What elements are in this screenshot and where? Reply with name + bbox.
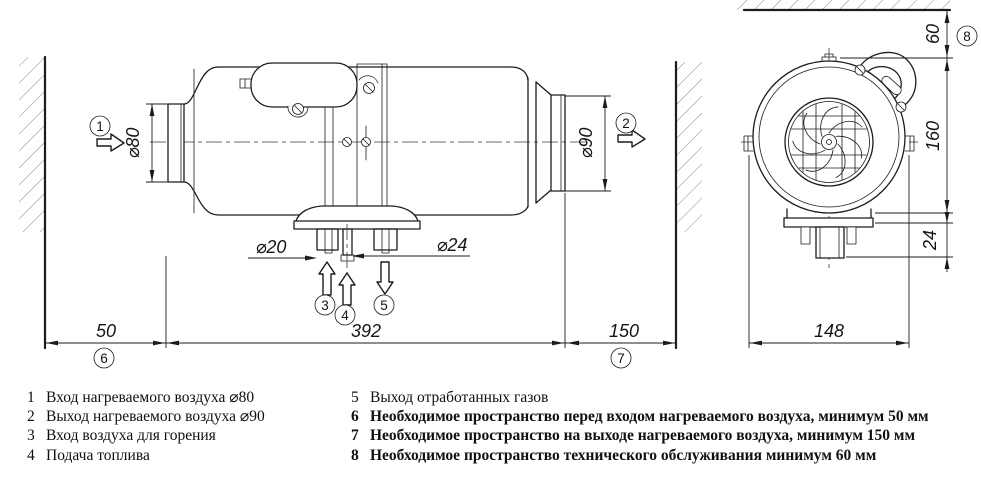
svg-text:5: 5 [380, 298, 388, 313]
outlet-pipe [551, 95, 565, 191]
fan-hub [822, 135, 837, 150]
legend-item-8: 8 Необходимое пространство технического … [351, 446, 976, 465]
dim-d80-label: ⌀80 [123, 128, 143, 159]
fuel-pipe [343, 229, 352, 255]
legend-item-3: 3 Вход воздуха для горения [27, 426, 337, 445]
fuel-arrow-icon [339, 273, 355, 305]
dim-d80: ⌀80 [123, 104, 168, 182]
ceiling-hatching [737, 0, 950, 10]
exhaust-arrow-icon [377, 262, 393, 294]
legend-item-6: 6 Необходимое пространство перед входом … [351, 407, 976, 426]
dim-d20-label: ⌀20 [256, 237, 287, 257]
mounting-flange [294, 206, 420, 276]
svg-text:7: 7 [617, 351, 625, 366]
dim-d90: ⌀90 [565, 96, 611, 191]
right-wall-hatching [676, 62, 702, 348]
svg-text:4: 4 [341, 308, 349, 323]
dim-150-label: 150 [609, 321, 639, 341]
dim-392-label: 392 [351, 321, 381, 341]
airflow-in-arrow-icon [97, 134, 124, 151]
heater-side-view: ⌀80 ⌀90 ⌀20 ⌀24 1 [45, 63, 676, 368]
callout-7: 7 [611, 348, 631, 368]
legend-item-7: 7 Необходимое пространство на выходе наг… [351, 426, 976, 445]
svg-text:1: 1 [96, 119, 104, 134]
exhaust-pipe [374, 229, 397, 250]
left-wall-hatching [19, 57, 45, 348]
legend-left-column: 1 Вход нагреваемого воздуха ⌀80 2 Выход … [27, 388, 337, 465]
heater-installation-drawing: ⌀80 ⌀90 ⌀20 ⌀24 1 [0, 0, 981, 478]
svg-text:3: 3 [321, 298, 329, 313]
dim-d24: ⌀24 [352, 235, 470, 259]
dim-60-label: 60 [923, 24, 943, 44]
combustion-air-pipe [317, 229, 338, 250]
legend-item-4: 4 Подача топлива [27, 446, 337, 465]
inlet-pipe [168, 104, 184, 182]
dim-148-label: 148 [814, 321, 844, 341]
combustion-air-arrow-icon [319, 262, 335, 295]
legend-item-2: 2 Выход нагреваемого воздуха ⌀90 [27, 407, 337, 426]
dim-160-label: 160 [923, 121, 943, 151]
legend-item-1: 1 Вход нагреваемого воздуха ⌀80 [27, 388, 337, 407]
legend-item-5: 5 Выход отработанных газов [351, 388, 976, 407]
callout-1: 1 [90, 116, 110, 136]
legend-right-column: 5 Выход отработанных газов 6 Необходимое… [351, 388, 976, 465]
svg-text:2: 2 [622, 116, 630, 131]
callout-6: 6 [94, 348, 114, 368]
svg-text:6: 6 [100, 351, 108, 366]
heater-front-view: 60 160 24 8 148 [741, 10, 977, 348]
dim-d20: ⌀20 [248, 237, 317, 261]
callout-2: 2 [616, 113, 636, 133]
callout-8: 8 [957, 26, 977, 46]
callout-5: 5 [374, 295, 394, 315]
front-flange [784, 209, 873, 258]
svg-text:8: 8 [963, 29, 971, 44]
dim-d24-label: ⌀24 [437, 235, 468, 255]
callout-3: 3 [315, 295, 335, 315]
dim-50-label: 50 [96, 321, 116, 341]
dim-24-label: 24 [920, 230, 940, 251]
dim-d90-label: ⌀90 [576, 128, 596, 159]
